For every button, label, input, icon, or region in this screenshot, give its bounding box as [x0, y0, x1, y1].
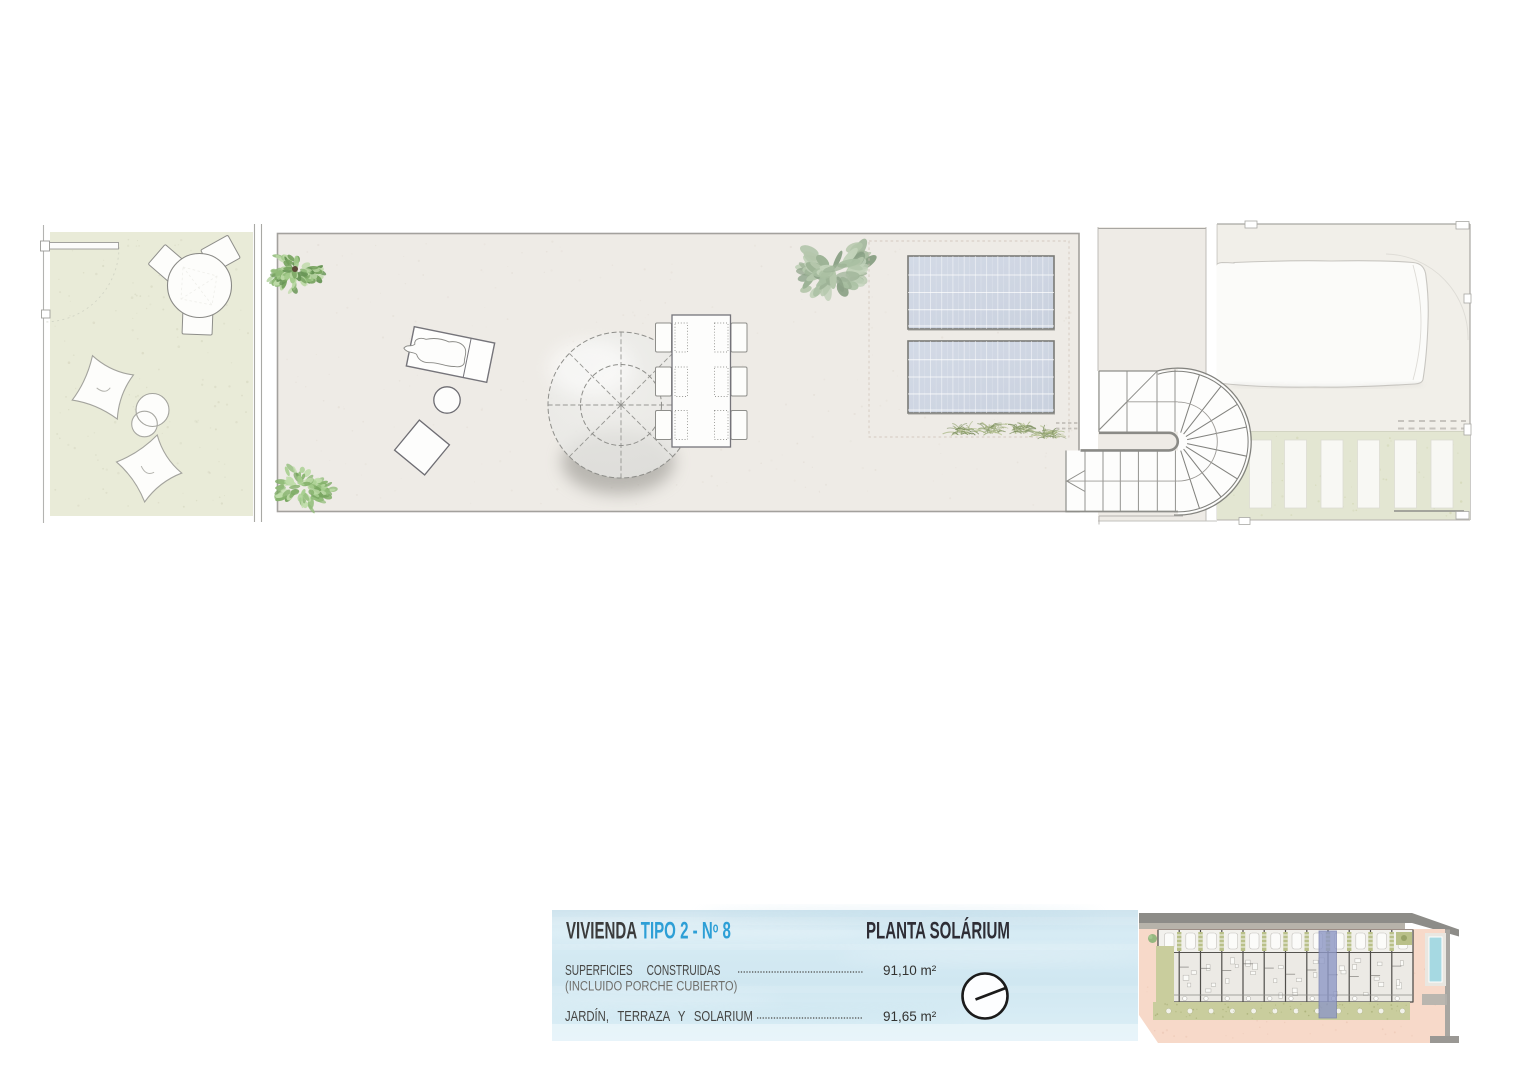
- svg-text:JARDÍN, TERRAZA Y SOLARIUM: JARDÍN, TERRAZA Y SOLARIUM: [565, 1008, 753, 1025]
- svg-text:m²: m²: [921, 963, 937, 978]
- svg-text:91,65: 91,65: [883, 1009, 917, 1024]
- svg-text:PLANTA SOLÁRIUM: PLANTA SOLÁRIUM: [866, 917, 1010, 945]
- svg-text:91,10: 91,10: [883, 963, 917, 978]
- svg-text:m²: m²: [921, 1009, 937, 1024]
- svg-text:SUPERFICIES CONSTRUIDAS: SUPERFICIES CONSTRUIDAS: [565, 962, 720, 978]
- svg-text:VIVIENDA TIPO 2 - No 8: VIVIENDA TIPO 2 - No 8: [566, 918, 731, 945]
- svg-text:(INCLUIDO PORCHE CUBIERTO): (INCLUIDO PORCHE CUBIERTO): [565, 978, 737, 993]
